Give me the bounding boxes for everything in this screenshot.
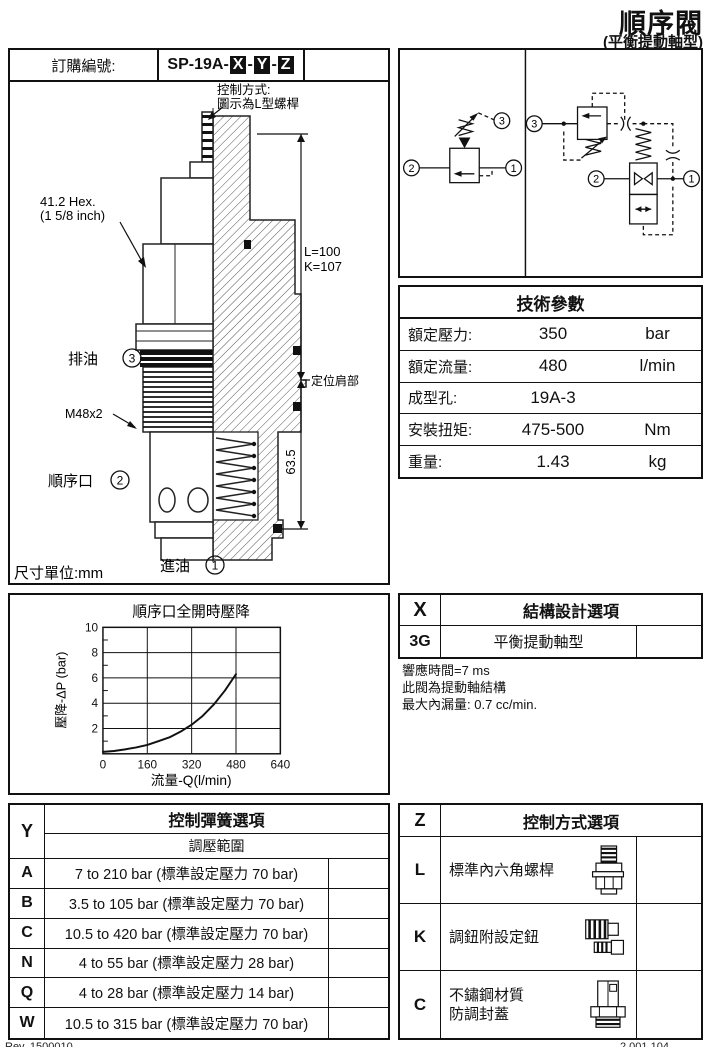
tech-param-unit: Nm (614, 420, 701, 440)
drain-port-label: 排油 (68, 351, 98, 368)
spring-option-code: W (10, 1008, 44, 1038)
spring-option-empty-cell (328, 1008, 388, 1038)
drain-port-number: 3 (129, 352, 136, 366)
control-option-cell: 調鈕附設定鈕 (440, 904, 636, 971)
control-option-empty-cell (636, 971, 701, 1038)
tech-param-value: 350 (492, 324, 614, 344)
z-section-code: Z (400, 805, 440, 837)
control-options-table: Z 控制方式選項 L 標準內六角螺桿 K 調鈕附設定鈕 (398, 803, 703, 1040)
valve-outline-half (136, 112, 213, 560)
unit-note: 尺寸單位:mm (14, 565, 103, 582)
inlet-port-label: 進油 (160, 558, 190, 575)
tech-param-value: 480 (492, 356, 614, 376)
spring-options-table: Y 控制彈簧選項 調壓範圍 A 7 to 210 bar (標準設定壓力 70 … (8, 803, 390, 1040)
control-option-cell: 不鏽鋼材質 防調封蓋 (440, 971, 636, 1038)
spring-option-code: B (10, 889, 44, 919)
sequence-port-number: 2 (117, 474, 124, 488)
tech-param-value: 1.43 (492, 452, 614, 472)
control-option-code: K (400, 904, 440, 971)
table-row: 重量: 1.43 kg (400, 446, 701, 477)
chart-x-tick-label: 640 (271, 758, 291, 771)
simple-port2-number: 2 (408, 163, 414, 175)
chart-xlabel: 流量-Q(l/min) (151, 773, 232, 788)
x-option-label: 平衡提動軸型 (440, 626, 636, 657)
x-section-code: X (400, 595, 440, 626)
x-note-line: 響應時間=7 ms (402, 662, 700, 679)
datasheet-page: 順序閥 (平衡提動軸型) 訂購編號: SP-19A-X-Y-Z (0, 0, 711, 1047)
order-code-y: Y (254, 56, 271, 74)
footer-doc-number: 2.001.104 (620, 1041, 669, 1047)
chart-y-tick-label: 4 (91, 697, 98, 710)
tech-params-title: 技術參數 (400, 287, 701, 319)
tech-param-value: 475-500 (492, 420, 614, 440)
order-code-sep2: - (271, 56, 276, 74)
valve-drawing-panel: 訂購編號: SP-19A-X-Y-Z (8, 48, 390, 585)
chart-y-tick-label: 2 (91, 722, 98, 735)
hex-size-label-line2: (1 5/8 inch) (40, 208, 105, 223)
x-option-code: 3G (400, 626, 440, 657)
pressure-drop-chart: 順序口全開時壓降 0160320480640246810 流量-Q(l/min)… (10, 595, 388, 793)
detail-port3-number: 3 (531, 119, 537, 131)
tech-params-table: 技術參數 額定壓力: 350 bar 額定流量: 480 l/min 成型孔: … (398, 285, 703, 479)
table-row: 安裝扭矩: 475-500 Nm (400, 414, 701, 446)
control-option-empty-cell (636, 837, 701, 904)
spring-option-code: N (10, 949, 44, 979)
x-section-title: 結構設計選項 (440, 595, 701, 626)
tech-param-unit: l/min (614, 356, 701, 376)
detail-port2-number: 2 (593, 174, 599, 186)
tech-param-unit: bar (614, 324, 701, 344)
tech-param-label: 成型孔: (400, 387, 492, 408)
order-code-prefix: SP-19A- (167, 56, 228, 74)
control-option-code: C (400, 971, 440, 1038)
sealed-cap-icon (584, 976, 632, 1034)
y-section-title: 控制彈簧選項 (44, 805, 388, 834)
hex-size-label-line1: 41.2 Hex. (40, 194, 96, 209)
control-option-label: 標準內六角螺桿 (449, 861, 554, 880)
tech-param-label: 重量: (400, 451, 492, 472)
detailed-symbol-fills (562, 113, 675, 212)
order-code-z: Z (278, 56, 294, 74)
control-option-label-line1: 不鏽鋼材質 (449, 986, 524, 1005)
spring-option-code: C (10, 919, 44, 949)
valve-cross-section-drawing: 控制方式: 圖示為L型螺桿 41.2 Hex. (1 5/8 inch) M48… (10, 80, 388, 585)
x-section-notes: 響應時間=7 ms 此閥為提動軸結構 最大內漏量: 0.7 cc/min. (402, 662, 700, 713)
chart-x-tick-label: 0 (100, 758, 107, 771)
control-option-label-line2: 防調封蓋 (449, 1005, 524, 1024)
thread-size-label: M48x2 (65, 407, 103, 421)
control-option-empty-cell (636, 904, 701, 971)
pressure-drop-chart-panel: 順序口全開時壓降 0160320480640246810 流量-Q(l/min)… (8, 593, 390, 795)
table-row: 額定流量: 480 l/min (400, 351, 701, 383)
spring-option-code: Q (10, 978, 44, 1008)
spring-option-label: 3.5 to 105 bar (標準設定壓力 70 bar) (44, 889, 328, 919)
tech-param-label: 安裝扭矩: (400, 419, 492, 440)
spring-option-label: 4 to 55 bar (標準設定壓力 28 bar) (44, 949, 328, 979)
y-section-code: Y (10, 805, 44, 859)
spring-option-label: 10.5 to 420 bar (標準設定壓力 70 bar) (44, 919, 328, 949)
tech-param-label: 額定壓力: (400, 324, 492, 345)
body-rings (140, 350, 213, 367)
dim-l-label: L=100 (304, 244, 341, 259)
chart-x-tick-label: 160 (137, 758, 157, 771)
control-option-cell: 標準內六角螺桿 (440, 837, 636, 904)
control-note-line1: 控制方式: (217, 82, 270, 97)
x-note-line: 此閥為提動軸結構 (402, 679, 700, 696)
order-number-code: SP-19A-X-Y-Z (157, 50, 303, 80)
control-note-line2: 圖示為L型螺桿 (217, 96, 299, 111)
order-number-label: 訂購編號: (10, 50, 157, 80)
chart-y-tick-label: 6 (91, 672, 98, 685)
spring-option-empty-cell (328, 919, 388, 949)
sequence-port-label: 順序口 (48, 473, 93, 490)
chart-x-tick-label: 320 (182, 758, 202, 771)
spring-option-empty-cell (328, 978, 388, 1008)
spring-option-empty-cell (328, 859, 388, 889)
spring-option-empty-cell (328, 889, 388, 919)
spring-option-empty-cell (328, 949, 388, 979)
spring-option-label: 7 to 210 bar (標準設定壓力 70 bar) (44, 859, 328, 889)
order-number-row: 訂購編號: SP-19A-X-Y-Z (10, 50, 388, 82)
hydraulic-symbol-panel: 2 1 3 (398, 48, 703, 278)
knob-icon (584, 908, 632, 966)
tech-param-label: 額定流量: (400, 356, 492, 377)
chart-y-tick-label: 10 (85, 621, 99, 634)
tech-param-unit: kg (614, 452, 701, 472)
hex-screw-icon (584, 841, 632, 899)
structure-options-table: X 結構設計選項 3G 平衡提動軸型 (398, 593, 703, 659)
table-row: 成型孔: 19A-3 (400, 383, 701, 415)
detail-port1-number: 1 (688, 174, 694, 186)
spring-option-label: 4 to 28 bar (標準設定壓力 14 bar) (44, 978, 328, 1008)
order-code-x: X (230, 56, 247, 74)
simple-port1-number: 1 (511, 163, 517, 175)
hydraulic-circuit-diagram: 2 1 3 (400, 50, 701, 276)
footer-revision: Rev. 1500010 (5, 1041, 73, 1047)
chart-title: 順序口全開時壓降 (132, 603, 250, 621)
simple-port3-number: 3 (499, 116, 505, 128)
spring-option-label: 10.5 to 315 bar (標準設定壓力 70 bar) (44, 1008, 328, 1038)
detailed-symbol (526, 93, 699, 234)
x-option-empty-cell (636, 626, 701, 657)
chart-y-tick-label: 8 (91, 647, 98, 660)
chart-x-tick-label: 480 (226, 758, 246, 771)
chart-curve (103, 674, 236, 752)
control-option-label: 不鏽鋼材質 防調封蓋 (449, 986, 524, 1024)
spring-option-code: A (10, 859, 44, 889)
control-option-code: L (400, 837, 440, 904)
shoulder-label: 定位肩部 (311, 373, 359, 388)
z-section-title: 控制方式選項 (440, 805, 701, 837)
order-code-sep1: - (247, 56, 252, 74)
chart-ylabel: 壓降-ΔP (bar) (54, 652, 69, 729)
tech-param-value: 19A-3 (492, 388, 614, 408)
inlet-port-number: 1 (212, 559, 219, 573)
control-option-label: 調鈕附設定鈕 (449, 928, 539, 947)
x-note-line: 最大內漏量: 0.7 cc/min. (402, 696, 700, 713)
dim-635-label: 63.5 (283, 449, 298, 474)
dim-k-label: K=107 (304, 259, 342, 274)
chart-plot-area: 0160320480640246810 (85, 621, 291, 771)
table-row: 額定壓力: 350 bar (400, 319, 701, 351)
order-number-empty-cell (303, 50, 388, 80)
y-section-subtitle: 調壓範圍 (44, 834, 388, 859)
